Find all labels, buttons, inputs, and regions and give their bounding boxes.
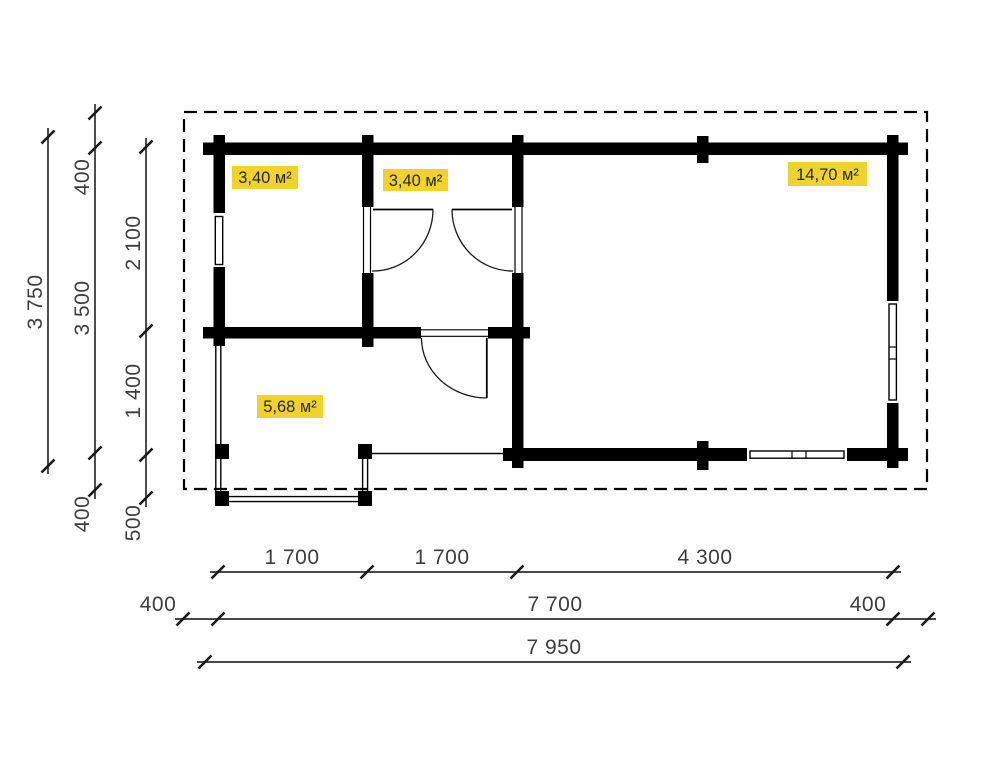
dim-left-overall: 3 750 [24, 274, 47, 329]
wall-bottom-log-stub [697, 441, 709, 470]
dim-left-eave-top: 400 [71, 159, 94, 196]
dim-bottom-bay3: 4 300 [677, 546, 732, 569]
dim-left-wall-span: 3 500 [71, 280, 94, 335]
porch-post-top-left [215, 444, 229, 459]
wall-top [203, 143, 908, 156]
dim-left-hall-depth: 1 400 [122, 363, 145, 418]
porch-structure [215, 346, 503, 506]
room-mid-small-area: 3,40 м² [389, 172, 443, 190]
dim-bottom-overall: 7 950 [526, 636, 581, 659]
floor-plan-drawing: 3,40 м² 3,40 м² 14,70 м² 5,68 м² 3 750 4… [0, 0, 1000, 780]
porch-post-bottom-left [215, 491, 229, 506]
porch-post-bottom-right [358, 491, 372, 506]
wall-partition2-upper [512, 135, 524, 207]
wall-bottom-right [847, 448, 908, 461]
wall-mid-right [488, 327, 530, 339]
wall-right-upper [887, 135, 899, 301]
floor-plan-page: 3,40 м² 3,40 м² 14,70 м² 5,68 м² 3 750 4… [0, 0, 1000, 780]
dim-bottom-bay2: 1 700 [414, 546, 469, 569]
room-left-small-area: 3,40 м² [238, 169, 292, 187]
dim-bottom-eave-right: 400 [850, 593, 887, 616]
door1-swing-arc [372, 210, 433, 272]
wall-mid-left [203, 327, 421, 339]
dim-bottom-wall-span: 7 700 [527, 593, 582, 616]
wall-top-log-stub [697, 136, 709, 163]
dimensions-left: 3 750 400 3 500 400 2 100 1 400 500 [24, 104, 153, 541]
dim-left-eave-bottom: 400 [71, 496, 94, 533]
room-large-area: 14,70 м² [796, 166, 859, 184]
door3-swing-arc [421, 338, 486, 398]
door2-swing-arc [452, 210, 513, 272]
dimensions-bottom: 1 700 1 700 4 300 400 7 700 400 7 950 [140, 546, 936, 669]
wall-partition2-lower [512, 273, 524, 468]
dim-bottom-eave-left: 400 [140, 593, 177, 616]
room-labels: 3,40 м² 3,40 м² 14,70 м² 5,68 м² [232, 162, 867, 418]
dim-bottom-bay1: 1 700 [264, 546, 319, 569]
doors [364, 207, 523, 398]
wall-partition1-upper [362, 135, 374, 207]
window-left [215, 217, 222, 265]
dim-left-porch-depth: 500 [122, 505, 145, 542]
window-right [889, 304, 896, 400]
dim-left-room-depth: 2 100 [122, 215, 145, 270]
wall-left-upper [214, 135, 226, 213]
window-bottom [750, 451, 844, 458]
porch-post-top-right [358, 444, 372, 459]
room-porch-area: 5,68 м² [263, 398, 317, 416]
wall-bottom-left [503, 448, 747, 461]
